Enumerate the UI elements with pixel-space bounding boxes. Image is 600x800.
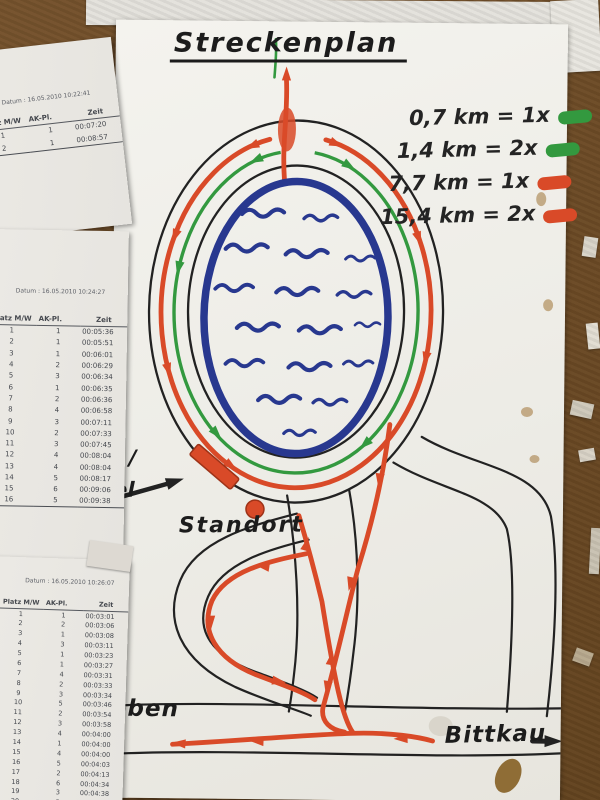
platz-cell: 9 (0, 415, 35, 427)
zeit-cell: 00:09:06 (77, 484, 124, 496)
zeit-cell: 00:06:34 (79, 371, 126, 383)
lower-roads (114, 434, 563, 759)
zeit-cell: 00:05:51 (80, 337, 127, 349)
legend-label: 1,4 km = 2x (396, 135, 537, 162)
akpl-cell: 1 (35, 382, 79, 394)
zeit-cell: 00:07:45 (78, 439, 125, 451)
column-header: AK-Pl. (37, 314, 81, 326)
zeit-cell: 00:06:01 (80, 349, 127, 361)
date-value: 16.05.2010 10:26:07 (51, 578, 114, 587)
corkboard: Streckenplan 0,7 km = 1x 1,4 km = 2x 7,7… (0, 0, 600, 800)
platz-cell: 10 (0, 426, 35, 438)
platz-cell: 13 (0, 460, 34, 472)
date-label: Datum : (1, 97, 26, 107)
legend-label: 0,7 km = 1x (409, 102, 550, 129)
platz-cell: 8 (0, 404, 35, 416)
platz-cell: 15 (0, 483, 34, 495)
red-route-blob (278, 107, 296, 151)
result-sheet-2: Datum : 16.05.2010 10:24:27 Platz M/WAK-… (0, 229, 129, 562)
akpl-cell: 1 (36, 325, 80, 337)
zeit-cell: 00:06:58 (79, 405, 126, 417)
zeit-cell: 00:06:36 (79, 394, 126, 406)
results-table: Platz M/WAK-Pl.Zeit 1 1 00:03:01 2 2 00:… (0, 596, 129, 800)
legend-row: 7,7 km = 1x (388, 165, 566, 200)
lake (203, 181, 390, 455)
akpl-cell: 1 (36, 337, 80, 349)
paper-scrap (582, 236, 599, 258)
column-header: Zeit (80, 315, 127, 327)
paper-scrap (572, 647, 594, 666)
akpl-cell: 2 (35, 393, 79, 405)
platz-cell: 3 (0, 347, 36, 359)
platz-cell: 1 (0, 324, 37, 336)
legend-row: 0,7 km = 1x (409, 99, 567, 134)
legend-swatch-icon (537, 175, 572, 191)
paper-scrap (578, 448, 596, 463)
page-title: Streckenplan (170, 27, 407, 62)
platz-cell: 14 (0, 471, 34, 483)
akpl-cell: 6 (34, 483, 78, 495)
zeit-cell: 00:08:17 (77, 473, 124, 485)
results-table: Platz M/WAK-Pl.Zeit 1 1 00:05:36 2 1 00:… (0, 313, 127, 508)
akpl-cell: 3 (34, 438, 78, 450)
legend-label: 15,4 km = 2x (380, 201, 536, 229)
akpl-cell: 3 (35, 416, 79, 428)
akpl-cell: 1 (36, 348, 80, 360)
standort-label: Standort (179, 513, 304, 539)
legend-swatch-icon (543, 208, 578, 224)
zeit-cell: 00:06:29 (79, 360, 126, 372)
legend-swatch-icon (545, 142, 580, 158)
paper-scrap (570, 400, 595, 419)
legend-row: 1,4 km = 2x (397, 132, 567, 167)
zeit-cell: 00:09:38 (77, 496, 124, 508)
town-label-right: Bittkau (444, 720, 546, 748)
date-value: 16.05.2010 10:24:27 (42, 288, 105, 296)
platz-cell: 2 (0, 139, 30, 158)
platz-cell: 4 (0, 358, 36, 370)
result-sheet-1: Datum : 16.05.2010 10:22:41 Platz M/WAK-… (0, 37, 132, 243)
platz-cell: 7 (0, 392, 35, 404)
legend: 0,7 km = 1x 1,4 km = 2x 7,7 km = 1x 15,4… (380, 98, 567, 232)
results-table: Platz M/WAK-Pl.Zeit 1 1 00:07:20 2 1 00:… (0, 104, 123, 158)
platz-cell: 11 (0, 437, 35, 449)
akpl-cell: 5 (33, 495, 77, 507)
platz-cell: 16 (0, 494, 34, 506)
legend-label: 7,7 km = 1x (388, 168, 529, 195)
date-line: Datum : 16.05.2010 10:22:41 (1, 90, 91, 107)
akpl-cell: 4 (35, 404, 79, 416)
akpl-cell: 2 (35, 427, 79, 439)
platz-cell: 6 (0, 381, 36, 393)
paper-stains (428, 191, 554, 798)
zeit-cell: 00:08:04 (78, 450, 125, 462)
platz-cell: 2 (0, 336, 36, 348)
legend-row: 15,4 km = 2x (380, 197, 566, 232)
date-label: Datum : (25, 577, 49, 585)
platz-cell: 12 (0, 449, 34, 461)
date-line: Datum : 16.05.2010 10:24:27 (16, 287, 105, 296)
result-sheet-3: Datum : 16.05.2010 10:26:07 039031089099… (0, 556, 130, 800)
date-value: 16.05.2010 10:22:41 (27, 90, 91, 104)
lake-waves (214, 209, 382, 436)
legend-swatch-icon (557, 109, 592, 125)
akpl-cell: 5 (34, 472, 78, 484)
akpl-cell: 4 (34, 461, 78, 473)
zeit-cell: 00:08:04 (78, 462, 125, 474)
paper-scrap (589, 528, 600, 574)
date-line: Datum : 16.05.2010 10:26:07 (25, 577, 115, 587)
zeit-cell: 00:05:36 (80, 326, 127, 338)
streckenplan-sheet: Streckenplan 0,7 km = 1x 1,4 km = 2x 7,7… (108, 20, 568, 800)
zeit-cell: 00:07:11 (78, 416, 125, 428)
column-header: Platz M/W (0, 313, 37, 325)
zeit-cell: 00:07:33 (78, 428, 125, 440)
paper-scrap (586, 322, 600, 349)
platz-cell: 20 (0, 796, 38, 800)
akpl-cell: 4 (34, 450, 78, 462)
date-label: Datum : (16, 287, 40, 294)
akpl-cell: 2 (36, 359, 80, 371)
platz-cell: 5 (0, 370, 36, 382)
akpl-cell: 3 (36, 371, 80, 383)
result-row: 16 5 00:09:38 (0, 494, 124, 508)
zeit-cell: 00:06:35 (79, 383, 126, 395)
